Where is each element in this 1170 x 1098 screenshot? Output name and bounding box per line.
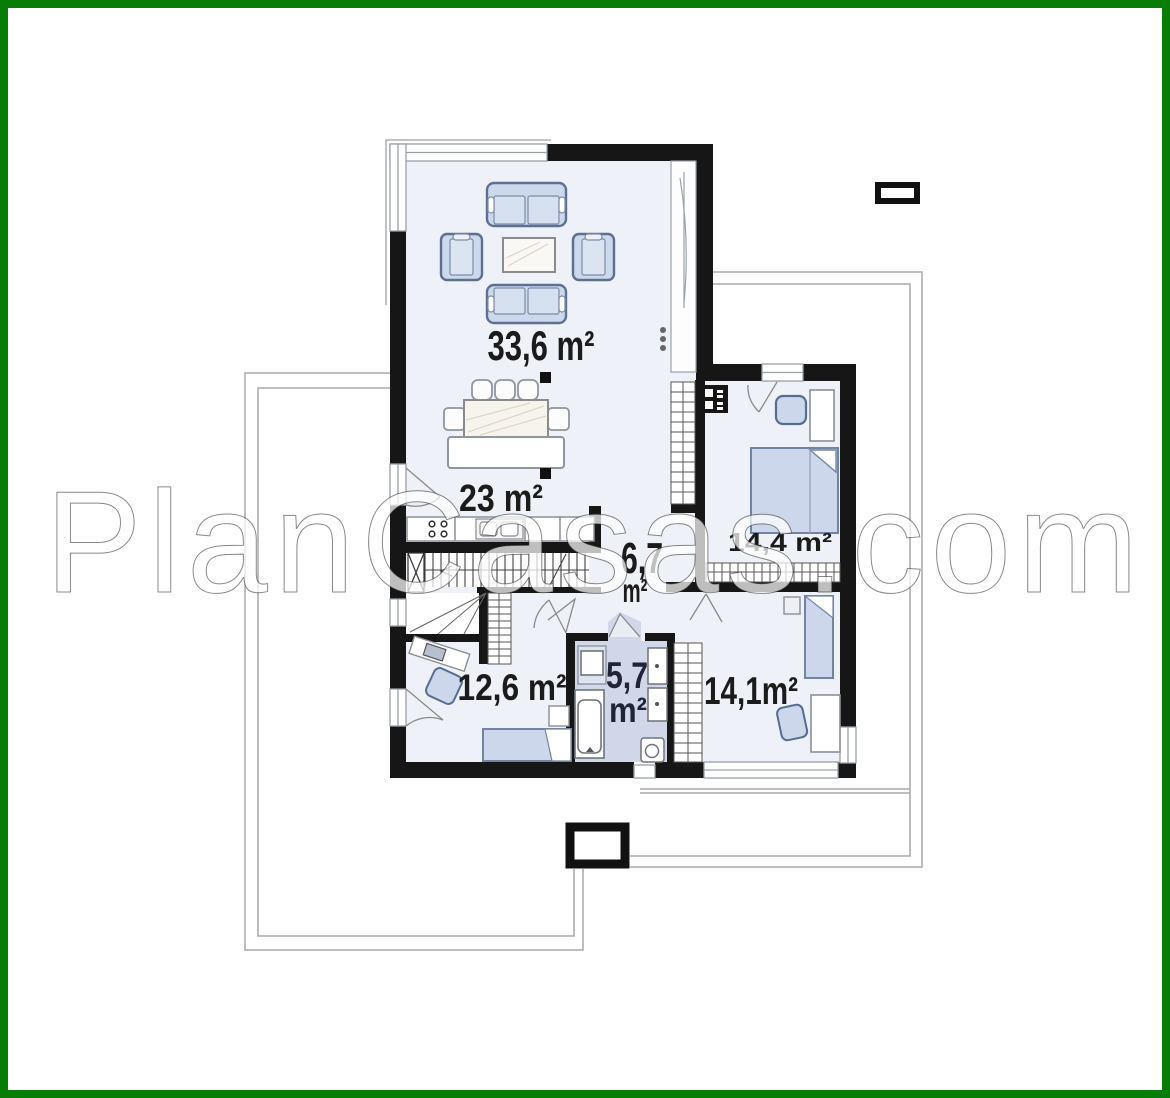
svg-text:m²: m² <box>609 691 647 730</box>
svg-text:5,7: 5,7 <box>606 655 648 696</box>
svg-text:PlanCasas.com: PlanCasas.com <box>45 461 1145 623</box>
svg-text:12,6 m²: 12,6 m² <box>458 667 567 708</box>
svg-text:14,1m²: 14,1m² <box>704 670 798 713</box>
svg-text:33,6 m²: 33,6 m² <box>488 322 595 369</box>
